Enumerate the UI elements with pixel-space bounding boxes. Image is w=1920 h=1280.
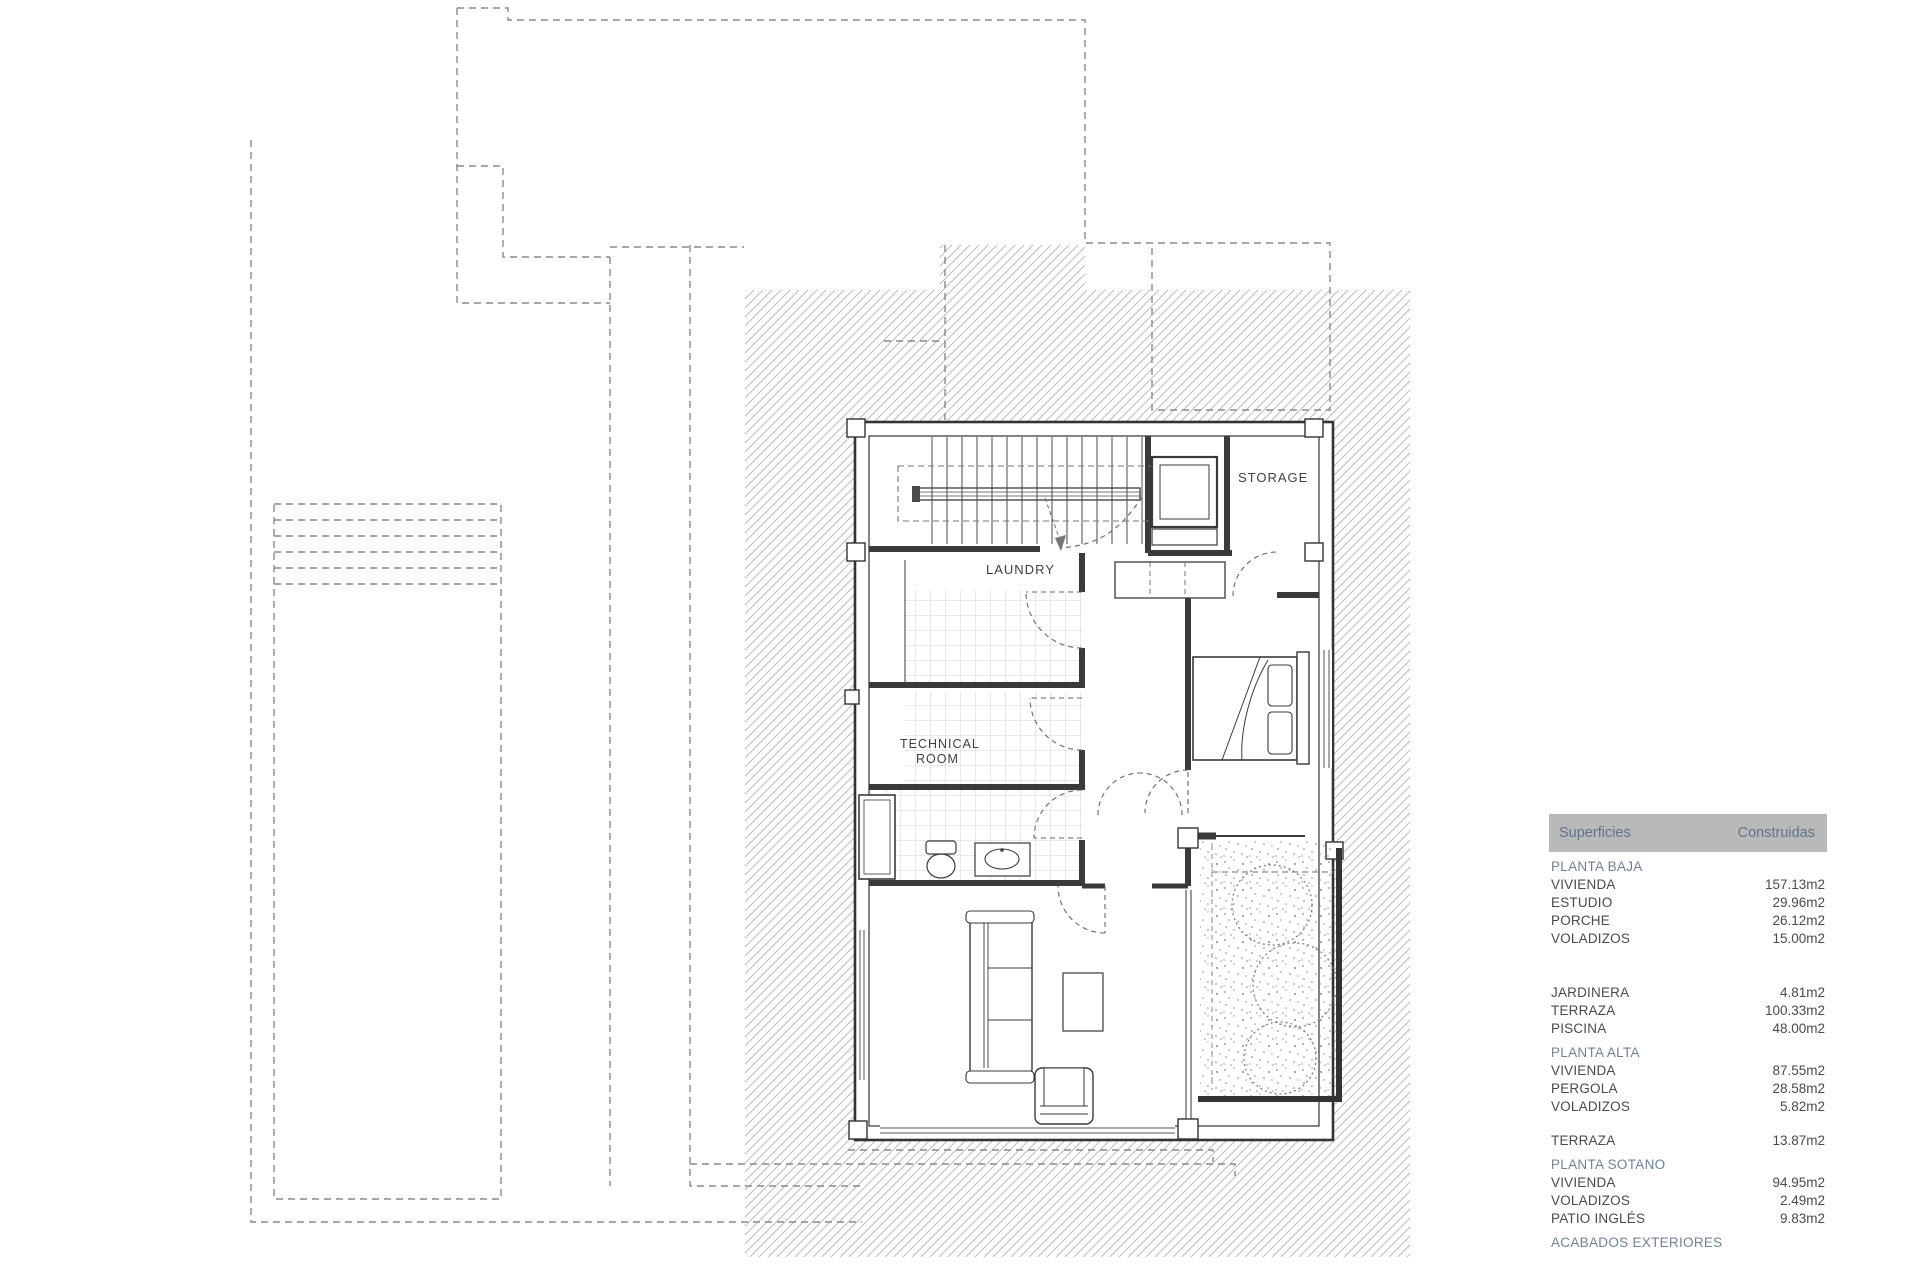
table-row: VIVIENDA87.55m2 — [1551, 1062, 1825, 1080]
row-value: 94.95m2 — [1772, 1174, 1825, 1192]
shower-cabinet — [859, 795, 895, 879]
row-value: 48.00m2 — [1772, 1020, 1825, 1038]
table-row: TERRAZA13.87m2 — [1551, 1132, 1825, 1150]
table-row: PISCINA48.00m2 — [1551, 1020, 1825, 1038]
areas-table-header-right: Construidas — [1738, 825, 1815, 841]
areas-table-header-left: Superficies — [1559, 825, 1631, 841]
armchair — [1035, 1068, 1093, 1124]
table-row: VOLADIZOS15.00m2 — [1551, 930, 1825, 948]
technical-room-label-line1: TECHNICAL — [900, 737, 980, 751]
row-value: 157.13m2 — [1765, 876, 1825, 894]
sofa — [966, 911, 1034, 1083]
table-section-header: PLANTA ALTA — [1551, 1044, 1825, 1062]
table-section-header: PLANTA SOTANO — [1551, 1156, 1825, 1174]
table-row: VOLADIZOS5.82m2 — [1551, 1098, 1825, 1116]
table-row: VIVIENDA157.13m2 — [1551, 876, 1825, 894]
row-label: VIVIENDA — [1551, 1062, 1616, 1080]
table-row: VOLADIZOS2.49m2 — [1551, 1192, 1825, 1210]
table-row: PATIO INGLÉS9.83m2 — [1551, 1210, 1825, 1228]
row-value: 5.82m2 — [1780, 1098, 1825, 1116]
row-value: 29.96m2 — [1772, 894, 1825, 912]
row-value: 28.58m2 — [1772, 1080, 1825, 1098]
areas-table: Superficies Construidas PLANTA BAJAVIVIE… — [1549, 814, 1827, 1252]
laundry-floor-tiles — [905, 590, 1082, 683]
bed — [1193, 652, 1309, 764]
row-label: ESTUDIO — [1551, 894, 1612, 912]
areas-table-header: Superficies Construidas — [1549, 814, 1827, 852]
table-spacer — [1551, 1116, 1825, 1132]
table-row: TERRAZA100.33m2 — [1551, 1002, 1825, 1020]
row-value: 87.55m2 — [1772, 1062, 1825, 1080]
row-label: JARDINERA — [1551, 984, 1629, 1002]
table-row: PORCHE26.12m2 — [1551, 912, 1825, 930]
row-label: VOLADIZOS — [1551, 1098, 1630, 1116]
table-section-header: ACABADOS EXTERIORES — [1551, 1234, 1825, 1252]
table-row: JARDINERA4.81m2 — [1551, 984, 1825, 1002]
row-label: PATIO INGLÉS — [1551, 1210, 1645, 1228]
table-row: PERGOLA28.58m2 — [1551, 1080, 1825, 1098]
sink — [975, 843, 1030, 876]
elevator-shaft — [1152, 457, 1217, 545]
row-label: VIVIENDA — [1551, 876, 1616, 894]
row-value: 15.00m2 — [1772, 930, 1825, 948]
row-label: PISCINA — [1551, 1020, 1606, 1038]
row-value: 2.49m2 — [1780, 1192, 1825, 1210]
row-value: 9.83m2 — [1780, 1210, 1825, 1228]
technical-room-label-line2: ROOM — [916, 752, 959, 766]
row-label: VOLADIZOS — [1551, 1192, 1630, 1210]
row-value: 100.33m2 — [1765, 1002, 1825, 1020]
row-label: VOLADIZOS — [1551, 930, 1630, 948]
row-value: 13.87m2 — [1772, 1132, 1825, 1150]
row-label: TERRAZA — [1551, 1002, 1615, 1020]
planted-terrace — [1198, 840, 1339, 1099]
row-value: 26.12m2 — [1772, 912, 1825, 930]
floorplan-sheet: STORAGE LAUNDRY TECHNICAL ROOM Superfici… — [0, 0, 1920, 1280]
toilet — [926, 841, 956, 878]
table-row: ESTUDIO29.96m2 — [1551, 894, 1825, 912]
areas-table-rows: PLANTA BAJAVIVIENDA157.13m2ESTUDIO29.96m… — [1549, 858, 1827, 1252]
row-label: TERRAZA — [1551, 1132, 1615, 1150]
row-label: PORCHE — [1551, 912, 1610, 930]
laundry-label: LAUNDRY — [986, 562, 1055, 577]
coffee-table — [1063, 973, 1103, 1031]
row-label: PERGOLA — [1551, 1080, 1618, 1098]
table-spacer — [1551, 948, 1825, 984]
table-row: VIVIENDA94.95m2 — [1551, 1174, 1825, 1192]
table-section-header: PLANTA BAJA — [1551, 858, 1825, 876]
storage-label: STORAGE — [1238, 470, 1308, 485]
row-label: VIVIENDA — [1551, 1174, 1616, 1192]
row-value: 4.81m2 — [1780, 984, 1825, 1002]
